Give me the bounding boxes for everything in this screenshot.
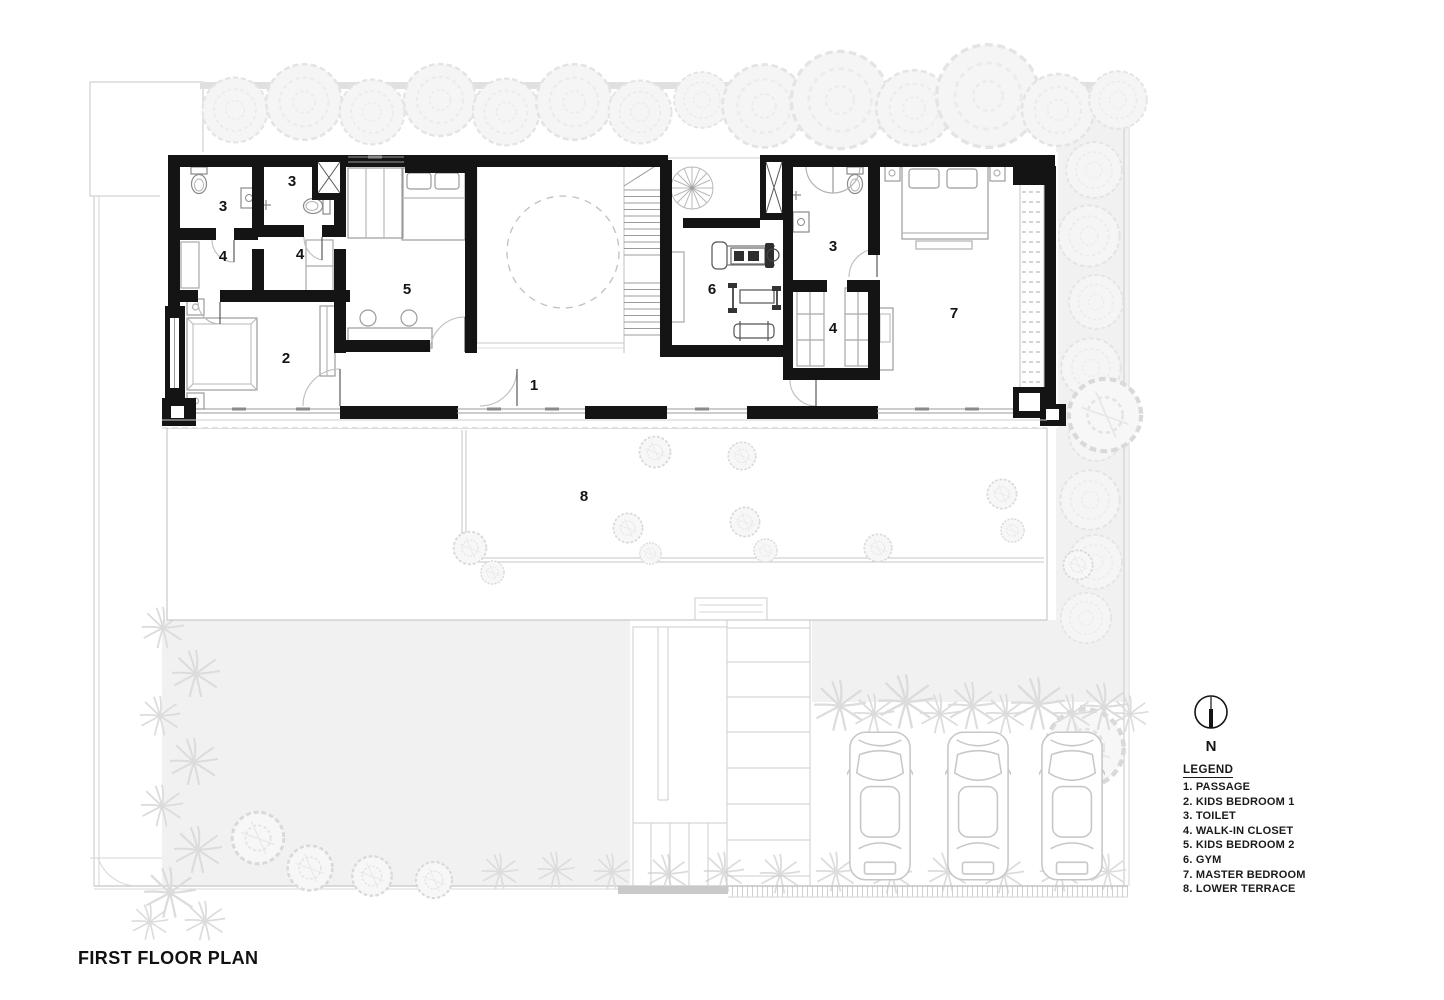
legend-item-gym: 6. GYM bbox=[1183, 853, 1306, 868]
car-1 bbox=[846, 732, 914, 880]
parked-cars bbox=[846, 732, 1106, 880]
legend-item-kids-bedroom-1: 2. KIDS BEDROOM 1 bbox=[1183, 795, 1306, 810]
legend-item-walk-in-closet: 4. WALK-IN CLOSET bbox=[1183, 824, 1306, 839]
room-label-lower-terrace: 8 bbox=[580, 488, 588, 505]
legend: LEGEND 1. PASSAGE 2. KIDS BEDROOM 1 3. T… bbox=[1183, 760, 1306, 897]
room-label-kids-bedroom-2: 5 bbox=[403, 281, 411, 298]
room-label-kids-bedroom-1: 2 bbox=[282, 350, 290, 367]
ramp-and-steps bbox=[633, 620, 810, 886]
legend-title: LEGEND bbox=[1183, 764, 1233, 778]
floor-plan-sheet: 3 3 4 4 2 5 1 6 3 4 7 8 N LEGEND 1. PASS… bbox=[0, 0, 1444, 1000]
drive-edge-bar bbox=[618, 886, 728, 894]
legend-item-lower-terrace: 8. LOWER TERRACE bbox=[1183, 882, 1306, 897]
car-2 bbox=[944, 732, 1012, 880]
lower-terrace bbox=[167, 428, 1093, 620]
room-label-toilet-left-1: 3 bbox=[219, 198, 227, 215]
room-label-gym: 6 bbox=[708, 281, 716, 298]
site-trees-top bbox=[203, 45, 1147, 149]
room-label-closet-right: 4 bbox=[829, 320, 838, 337]
room-label-passage: 1 bbox=[530, 377, 538, 394]
paving-hatch-strip bbox=[728, 886, 1128, 897]
room-label-master-bedroom: 7 bbox=[950, 305, 958, 322]
room-label-closet-left-1: 4 bbox=[219, 248, 228, 265]
room-label-toilet-left-2: 3 bbox=[288, 173, 296, 190]
room-label-toilet-right: 3 bbox=[829, 238, 837, 255]
legend-item-passage: 1. PASSAGE bbox=[1183, 780, 1306, 795]
north-arrow-icon: N bbox=[1195, 696, 1227, 755]
room-label-closet-left-2: 4 bbox=[296, 246, 305, 263]
car-3 bbox=[1038, 732, 1106, 880]
page-title: FIRST FLOOR PLAN bbox=[78, 948, 258, 969]
north-label: N bbox=[1206, 738, 1217, 755]
legend-item-master-bedroom: 7. MASTER BEDROOM bbox=[1183, 868, 1306, 883]
legend-item-toilet: 3. TOILET bbox=[1183, 809, 1306, 824]
legend-item-kids-bedroom-2: 5. KIDS BEDROOM 2 bbox=[1183, 838, 1306, 853]
